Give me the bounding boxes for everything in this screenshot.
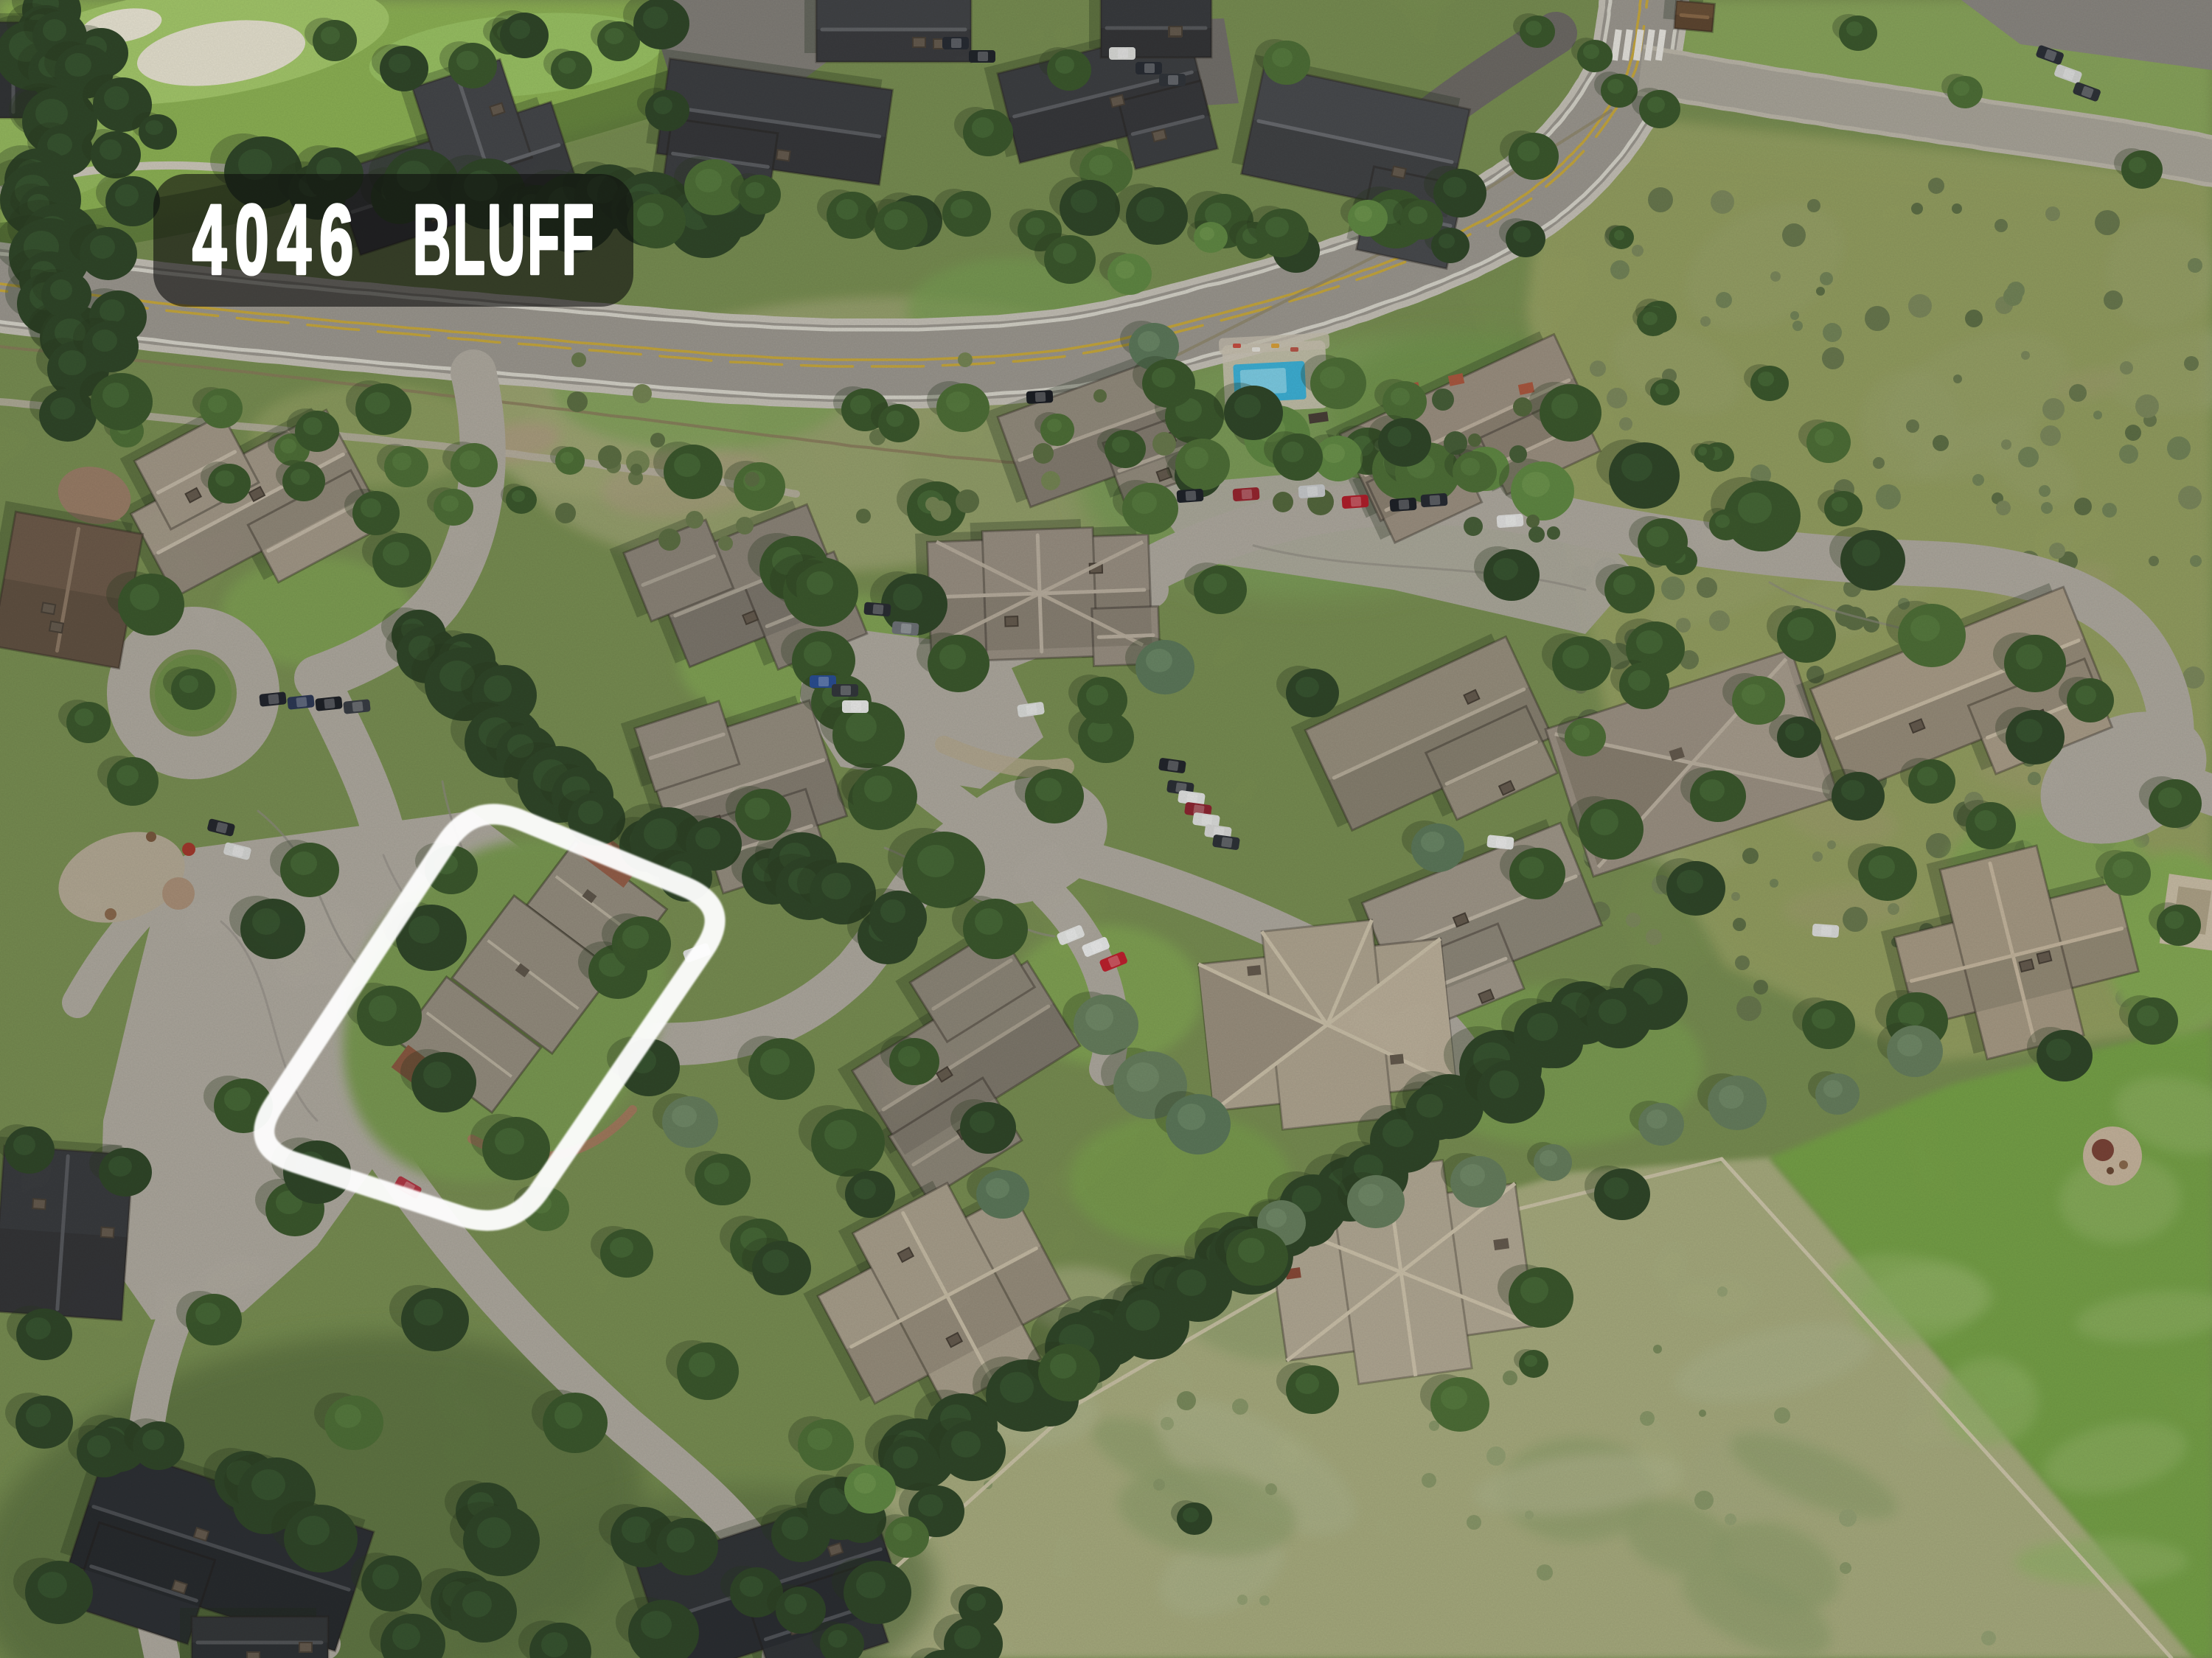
svg-text:BLUFF: BLUFF (413, 184, 597, 295)
svg-text:4046: 4046 (192, 184, 361, 295)
